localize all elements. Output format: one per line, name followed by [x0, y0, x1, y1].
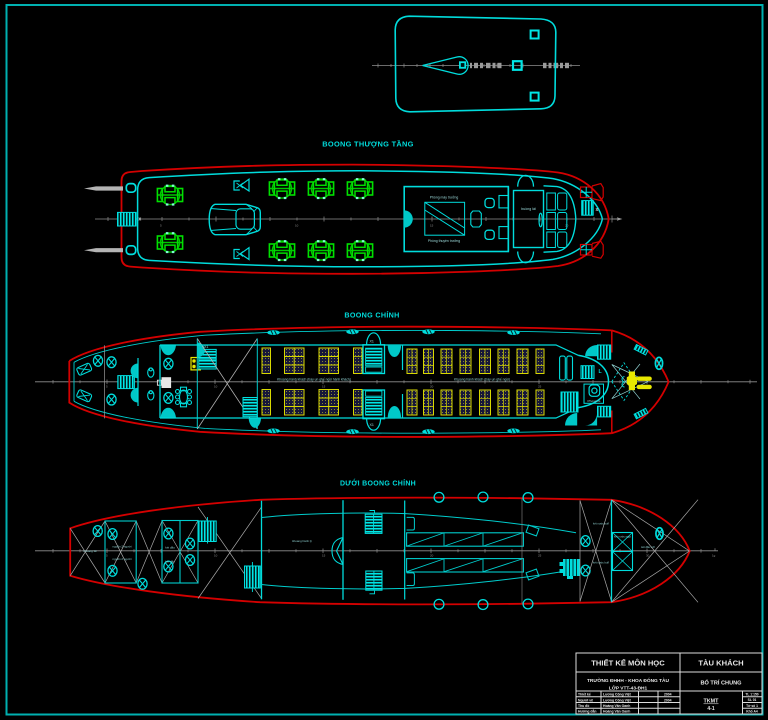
svg-text:Hoàng Văn Oanh: Hoàng Văn Oanh — [603, 710, 630, 714]
svg-text:nguồn 2 người: nguồn 2 người — [113, 544, 132, 548]
svg-text:Khoang hành khách (bày ụn ghế: Khoang hành khách (bày ụn ghế ngồi) — [454, 377, 510, 381]
svg-text:15: 15 — [322, 385, 326, 389]
svg-text:X1: X1 — [370, 423, 374, 427]
svg-text:1g: 1g — [712, 554, 716, 558]
svg-text:15: 15 — [430, 224, 434, 228]
svg-text:20: 20 — [430, 385, 434, 389]
svg-text:TÀU KHÁCH: TÀU KHÁCH — [698, 659, 743, 668]
svg-text:2004: 2004 — [664, 693, 672, 697]
svg-text:DƯỚI BOONG CHÍNH: DƯỚI BOONG CHÍNH — [340, 479, 416, 488]
svg-text:két nước ngọt: két nước ngọt — [614, 535, 631, 539]
svg-text:Phòng thuyền trưởng: Phòng thuyền trưởng — [428, 239, 460, 243]
svg-text:Phòng vs: Phòng vs — [588, 399, 601, 403]
svg-text:nguồn 2 người: nguồn 2 người — [113, 557, 132, 561]
svg-text:Lương Công Việt: Lương Công Việt — [603, 698, 632, 702]
svg-text:30: 30 — [646, 554, 650, 558]
svg-text:BỐ TRÍ CHUNG: BỐ TRÍ CHUNG — [700, 679, 741, 687]
svg-text:SL 01: SL 01 — [748, 698, 757, 702]
svg-text:10: 10 — [295, 224, 299, 228]
svg-text:10: 10 — [214, 385, 218, 389]
svg-text:khoang hành lý: khoang hành lý — [292, 539, 312, 543]
svg-text:TL 1:150: TL 1:150 — [745, 692, 758, 696]
svg-text:BOONG THƯỢNG TẦNG: BOONG THƯỢNG TẦNG — [322, 139, 413, 149]
svg-text:x: x — [139, 217, 142, 223]
svg-text:2004: 2004 — [664, 698, 672, 702]
svg-text:25: 25 — [538, 385, 542, 389]
svg-text:khoang lái: khoang lái — [83, 549, 97, 553]
svg-text:4-1: 4-1 — [707, 706, 714, 712]
svg-text:két dầu: két dầu — [165, 559, 175, 563]
svg-text:két nước buff: két nước buff — [593, 560, 609, 564]
svg-text:Hướng dẫn: Hướng dẫn — [578, 710, 596, 714]
svg-text:Thiết kế: Thiết kế — [578, 693, 591, 697]
svg-text:Khoang hành khách (bày ụn ghế: Khoang hành khách (bày ụn ghế ngồi hành … — [277, 377, 351, 381]
svg-text:25: 25 — [538, 554, 542, 558]
svg-text:két dầu: két dầu — [165, 546, 175, 550]
svg-text:Lương Công Việt: Lương Công Việt — [603, 693, 632, 697]
svg-text:Hoàng Văn Oanh: Hoàng Văn Oanh — [603, 704, 630, 708]
svg-text:Phòng máy trưởng: Phòng máy trưởng — [430, 196, 459, 200]
svg-text:X1: X1 — [370, 340, 374, 344]
svg-text:15: 15 — [322, 554, 326, 558]
svg-text:Thu đồ: Thu đồ — [578, 704, 589, 708]
svg-text:BOONG CHÍNH: BOONG CHÍNH — [344, 311, 399, 320]
svg-text:THIẾT KẾ MÔN HỌC: THIẾT KẾ MÔN HỌC — [591, 658, 665, 668]
svg-text:két nước buff: két nước buff — [593, 521, 609, 525]
svg-text:buồng lái: buồng lái — [521, 207, 536, 211]
svg-text:Người vẽ: Người vẽ — [578, 698, 593, 702]
svg-text:Khổ A4: Khổ A4 — [746, 710, 758, 714]
svg-text:10: 10 — [214, 554, 218, 558]
svg-text:TKMT: TKMT — [704, 699, 720, 705]
svg-text:Tờ số 1: Tờ số 1 — [746, 704, 758, 708]
svg-text:20: 20 — [430, 554, 434, 558]
svg-text:két dầu mỡ: két dầu mỡ — [641, 545, 655, 549]
svg-text:x: x — [596, 207, 599, 213]
